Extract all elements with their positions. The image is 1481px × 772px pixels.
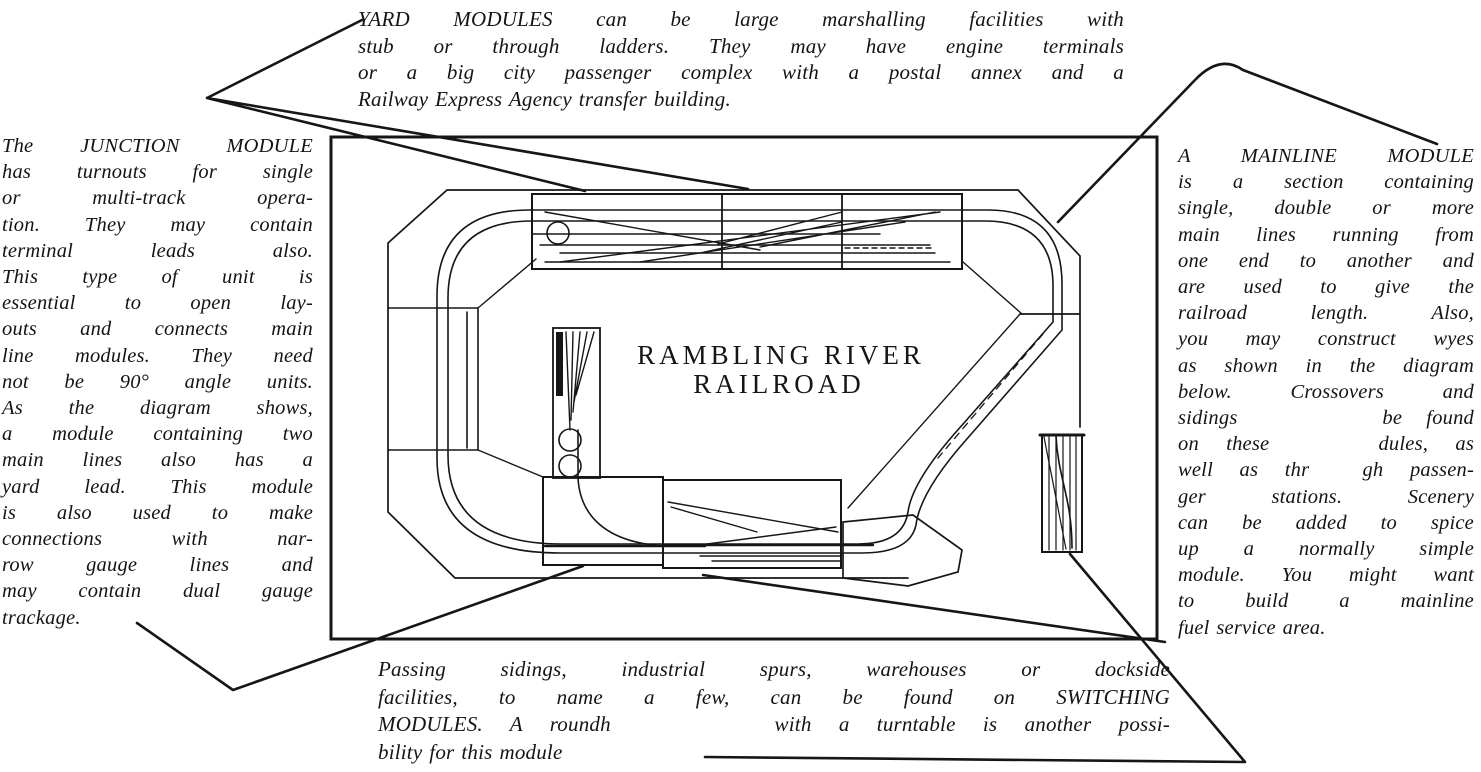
text-line: is a section containing [1178,169,1474,195]
text-line: can be added to spice [1178,510,1474,536]
switching-module-left [543,477,705,565]
text-line: stub or through ladders. They may have e… [358,33,1124,60]
text-line: This type of unit is [2,264,313,290]
yard-turnaround [547,222,569,244]
text-line: one end to another and [1178,248,1474,274]
text-line: has turnouts for single [2,159,313,185]
text-line: a module containing two [2,421,313,447]
text-line: outs and connects main [2,316,313,342]
text-line: As the diagram shows, [2,395,313,421]
text-line: Passing sidings, industrial spurs, wareh… [378,656,1170,684]
text-line: MODULES. A roundh with a turntable is an… [378,711,1170,739]
text-line: on these dules, as [1178,431,1474,457]
switching-modules-callout: Passing sidings, industrial spurs, wareh… [378,656,1170,766]
yard-modules-callout: YARD MODULES can be large marshalling fa… [358,6,1124,112]
railroad-title-line2: RAILROAD [693,369,865,399]
mainline-module-callout: A MAINLINE MODULEis a section containing… [1178,143,1474,641]
junction-module-callout: The JUNCTION MODULEhas turnouts for sing… [2,133,313,631]
text-line: trackage. [2,605,313,631]
text-line: ger stations. Scenery [1178,484,1474,510]
railroad-title-line1: RAMBLING RIVER [637,340,925,370]
text-line: row gauge lines and [2,552,313,578]
trestle-module [1040,435,1084,552]
text-line: railroad length. Also, [1178,300,1474,326]
text-line: is also used to make [2,500,313,526]
text-line: yard lead. This module [2,474,313,500]
text-line: up a normally simple [1178,536,1474,562]
text-line: essential to open lay- [2,290,313,316]
text-line: not be 90° angle units. [2,369,313,395]
text-line: connections with nar- [2,526,313,552]
text-line: tion. They may contain [2,212,313,238]
left-mainline-module [388,308,478,450]
text-line: as shown in the diagram [1178,353,1474,379]
text-line: single, double or more [1178,195,1474,221]
text-line: bility for this module [378,739,1170,767]
text-line: you may construct wyes [1178,326,1474,352]
text-line: are used to give the [1178,274,1474,300]
branch-heavy-track [556,332,563,396]
text-line: facilities, to name a few, can be found … [378,684,1170,712]
text-line: or multi-track opera- [2,185,313,211]
text-line: well as thr gh passen- [1178,457,1474,483]
text-line: sidings be found [1178,405,1474,431]
text-line: to build a mainline [1178,588,1474,614]
wye-centerline [938,334,1043,458]
text-line: may contain dual gauge [2,578,313,604]
text-line: A MAINLINE MODULE [1178,143,1474,169]
text-line: or a big city passenger complex with a p… [358,59,1124,86]
text-line: YARD MODULES can be large marshalling fa… [358,6,1124,33]
text-line: main lines running from [1178,222,1474,248]
text-line: main lines also has a [2,447,313,473]
yard-module [532,194,962,269]
text-line: terminal leads also. [2,238,313,264]
text-line: Railway Express Agency transfer building… [358,86,1124,113]
text-line: line modules. They need [2,343,313,369]
switching-module-center [663,480,873,568]
text-line: The JUNCTION MODULE [2,133,313,159]
text-line: below. Crossovers and [1178,379,1474,405]
text-line: module. You might want [1178,562,1474,588]
text-line: fuel service area. [1178,615,1474,641]
